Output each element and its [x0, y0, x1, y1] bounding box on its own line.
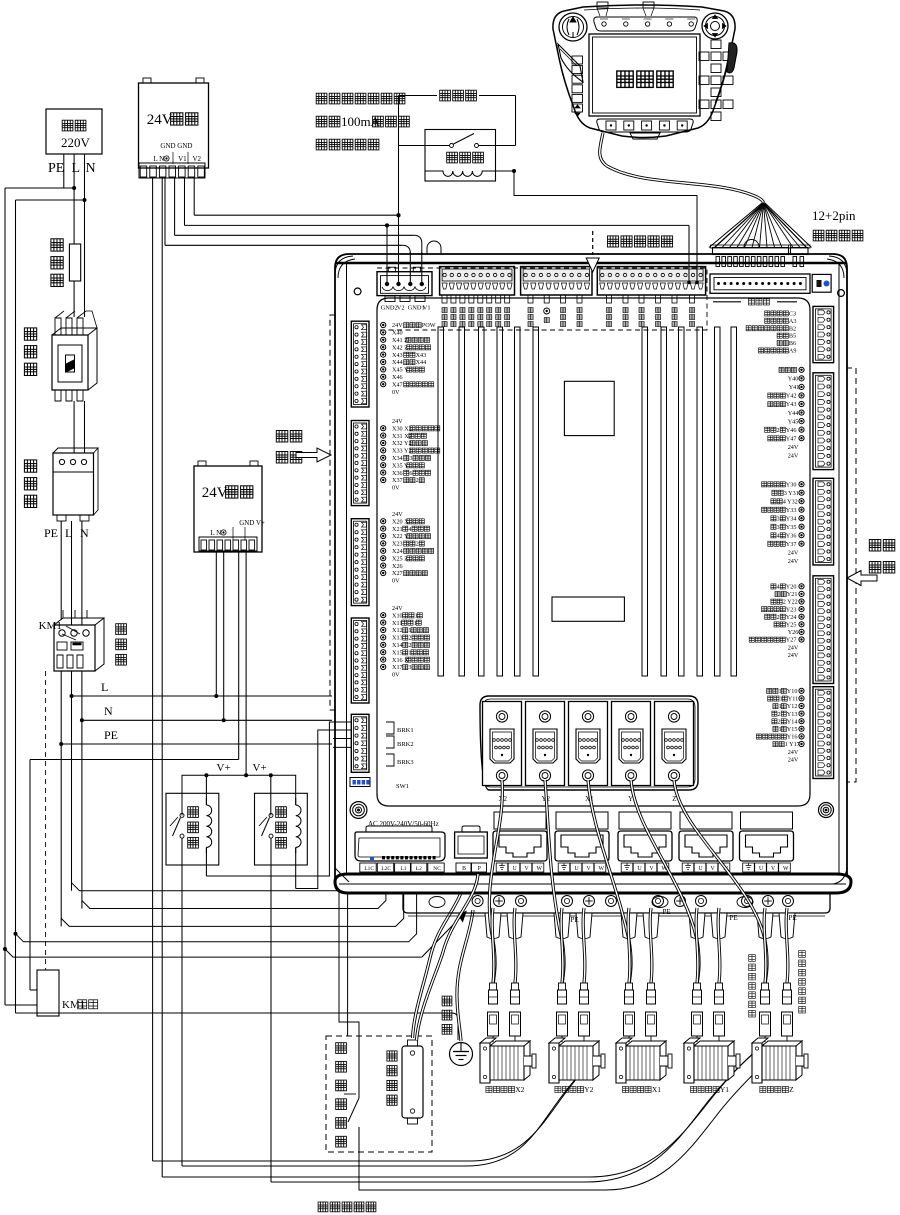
svg-text:Y20: Y20	[786, 584, 797, 591]
svg-text:Y42: Y42	[786, 393, 797, 400]
svg-text:X42 Z: X42 Z	[392, 344, 408, 351]
svg-text:X33 Y2: X33 Y2	[392, 448, 412, 455]
svg-text:Y44: Y44	[788, 410, 799, 417]
svg-text:Y45: Y45	[788, 418, 799, 425]
svg-text:Y15: Y15	[787, 726, 798, 733]
svg-text:AC 200V-240V/50-60Hz: AC 200V-240V/50-60Hz	[368, 820, 439, 828]
svg-text:V1: V1	[178, 155, 187, 163]
svg-text:3: 3	[777, 524, 780, 531]
svg-text:X22 Y: X22 Y	[392, 533, 409, 540]
svg-text:3: 3	[408, 664, 411, 671]
svg-text:24V: 24V	[788, 444, 799, 451]
svg-text:Z: Z	[672, 795, 676, 803]
svg-text:X27: X27	[392, 570, 403, 577]
svg-text:X16 X: X16 X	[392, 657, 409, 664]
svg-text:X15: X15	[392, 649, 403, 656]
svg-text:24V: 24V	[202, 485, 228, 501]
svg-text:Y43: Y43	[786, 401, 797, 408]
svg-text:Y25: Y25	[786, 622, 797, 629]
svg-text:2: 2	[777, 614, 780, 621]
svg-text:X46: X46	[392, 374, 403, 381]
svg-text:Y1: Y1	[720, 1085, 729, 1094]
svg-text:Y37: Y37	[786, 541, 797, 548]
svg-text:NC: NC	[433, 866, 441, 872]
svg-text:PE: PE	[663, 908, 671, 916]
svg-text:Y13: Y13	[787, 711, 798, 718]
svg-text:Y33: Y33	[786, 507, 797, 514]
svg-text:GND2: GND2	[381, 305, 398, 312]
svg-text:PE: PE	[44, 526, 58, 540]
svg-text:Y30: Y30	[786, 481, 797, 488]
svg-text:Y36: Y36	[786, 532, 797, 539]
svg-text:Y11: Y11	[788, 696, 798, 703]
svg-text:3: 3	[409, 455, 412, 462]
svg-text:24V: 24V	[788, 644, 799, 651]
svg-text:PE: PE	[104, 728, 118, 742]
svg-text:B5: B5	[789, 333, 796, 340]
svg-text:L N: L N	[153, 155, 164, 163]
svg-text:N: N	[104, 704, 113, 718]
svg-text:4: 4	[777, 532, 780, 539]
svg-text:2: 2	[416, 477, 419, 484]
svg-text:X10: X10	[392, 612, 403, 619]
svg-text:A3: A3	[789, 318, 797, 325]
svg-text:4 Y32: 4 Y32	[783, 498, 798, 505]
svg-text:Y35: Y35	[786, 524, 797, 531]
svg-text:0V: 0V	[392, 485, 400, 492]
svg-text:X23: X23	[392, 541, 403, 548]
svg-text:L: L	[72, 161, 81, 176]
svg-text:L1: L1	[401, 866, 407, 872]
svg-text:24V: 24V	[788, 756, 799, 763]
svg-text:24V: 24V	[392, 511, 403, 518]
svg-text:Y27: Y27	[786, 637, 797, 644]
svg-text:GND GND: GND GND	[160, 142, 192, 150]
svg-text:0V: 0V	[392, 389, 400, 396]
svg-text:3: 3	[777, 515, 780, 522]
svg-text:24V: 24V	[392, 418, 403, 425]
svg-text:POW: POW	[422, 322, 436, 329]
svg-text:24V: 24V	[147, 112, 173, 128]
svg-text:V2: V2	[397, 305, 405, 312]
svg-text:2: 2	[416, 541, 419, 548]
svg-text:C3: C3	[789, 311, 796, 318]
svg-text:3 Y31: 3 Y31	[784, 490, 799, 497]
svg-text:X21: X21	[392, 526, 403, 533]
svg-text:B6: B6	[789, 340, 796, 347]
svg-text:PE: PE	[789, 914, 797, 922]
svg-text:W: W	[783, 866, 789, 872]
svg-text:220V: 220V	[61, 135, 91, 150]
svg-text:BRK1: BRK1	[397, 727, 414, 734]
svg-text:12+2pin: 12+2pin	[812, 208, 856, 223]
svg-text:Y24: Y24	[786, 614, 797, 621]
svg-text:N: N	[86, 161, 96, 176]
svg-text:2: 2	[778, 718, 781, 725]
svg-text:Y21: Y21	[787, 591, 798, 598]
svg-text:V+: V+	[253, 762, 267, 774]
svg-text:2: 2	[408, 635, 411, 642]
svg-text:Y41: Y41	[789, 384, 800, 391]
svg-text:24V: 24V	[392, 322, 403, 329]
svg-text:X44: X44	[392, 359, 403, 366]
svg-text:X2: X2	[515, 1085, 524, 1094]
svg-text:0V: 0V	[392, 578, 400, 585]
svg-text:X11: X11	[392, 620, 402, 627]
svg-text:X17: X17	[392, 664, 403, 671]
svg-text:2: 2	[778, 711, 781, 718]
svg-text:X14: X14	[392, 642, 403, 649]
svg-text:L2C: L2C	[381, 866, 391, 872]
svg-text:X43: X43	[392, 352, 403, 359]
svg-text:L: L	[101, 680, 108, 694]
svg-text:A9: A9	[789, 348, 797, 355]
svg-text:X40: X40	[392, 330, 403, 337]
svg-text:Y12: Y12	[787, 703, 798, 710]
svg-text:24V: 24V	[788, 549, 799, 556]
svg-text:SW1: SW1	[396, 783, 409, 790]
svg-text:Y14: Y14	[787, 718, 798, 725]
svg-text:Y2: Y2	[584, 1085, 593, 1094]
svg-text:GND V+: GND V+	[239, 519, 265, 527]
svg-text:24V: 24V	[392, 605, 403, 612]
svg-text:X12: X12	[392, 627, 403, 634]
svg-text:0V: 0V	[392, 672, 400, 679]
svg-text:4: 4	[408, 526, 411, 533]
svg-text:X32 Y2: X32 Y2	[392, 440, 412, 447]
svg-text:BRK2: BRK2	[397, 741, 414, 748]
svg-text:X26: X26	[392, 563, 403, 570]
svg-text:X47: X47	[392, 381, 403, 388]
svg-text:6: 6	[409, 470, 412, 477]
svg-text:KM1: KM1	[62, 999, 85, 1011]
svg-text:PE: PE	[48, 161, 64, 176]
svg-text:24V: 24V	[788, 749, 799, 756]
svg-text:B2: B2	[789, 325, 796, 332]
svg-text:Y46: Y46	[786, 427, 797, 434]
svg-text:V1: V1	[423, 305, 431, 312]
svg-text:X44: X44	[416, 359, 427, 366]
svg-text:Y10: Y10	[787, 688, 798, 695]
svg-text:X36: X36	[392, 470, 403, 477]
svg-text:X45 Y: X45 Y	[392, 367, 409, 374]
svg-text:2: 2	[777, 427, 780, 434]
svg-text:L N: L N	[210, 529, 221, 537]
svg-text:24V: 24V	[788, 453, 799, 460]
svg-text:X30 X2: X30 X2	[392, 425, 412, 432]
svg-text:N: N	[80, 526, 89, 540]
svg-text:X25 Z: X25 Z	[392, 555, 408, 562]
svg-text:X24: X24	[392, 548, 403, 555]
svg-text:Y47: Y47	[786, 435, 797, 442]
svg-text:P: P	[478, 866, 481, 872]
svg-text:V2: V2	[193, 155, 202, 163]
svg-text:X34: X34	[392, 455, 403, 462]
svg-text:Z: Z	[789, 1085, 794, 1094]
svg-text:X1: X1	[652, 1085, 661, 1094]
svg-text:Y26: Y26	[788, 629, 799, 636]
svg-text:V+: V+	[217, 762, 231, 774]
svg-text:BRK3: BRK3	[397, 759, 414, 766]
svg-text:W: W	[599, 866, 605, 872]
svg-text:1 Y17: 1 Y17	[785, 741, 800, 748]
svg-text:Y16: Y16	[787, 734, 798, 741]
svg-text:24V: 24V	[788, 652, 799, 659]
svg-text:W: W	[537, 866, 543, 872]
svg-text:L1C: L1C	[364, 866, 374, 872]
svg-text:X37: X37	[392, 477, 403, 484]
svg-text:Y40: Y40	[788, 376, 799, 383]
svg-text:Y34: Y34	[786, 515, 797, 522]
svg-text:B: B	[462, 866, 466, 872]
svg-text:X43: X43	[416, 352, 427, 359]
svg-text:X35 Y: X35 Y	[392, 462, 409, 469]
svg-text:Y23: Y23	[786, 606, 797, 613]
svg-text:PE: PE	[571, 916, 579, 924]
svg-text:L2: L2	[416, 866, 422, 872]
svg-text:2 Y22: 2 Y22	[783, 599, 798, 606]
svg-text:2: 2	[408, 642, 411, 649]
svg-text:PE: PE	[730, 914, 738, 922]
svg-text:4: 4	[777, 584, 780, 591]
svg-text:24V: 24V	[788, 558, 799, 565]
svg-text:X13: X13	[392, 635, 403, 642]
